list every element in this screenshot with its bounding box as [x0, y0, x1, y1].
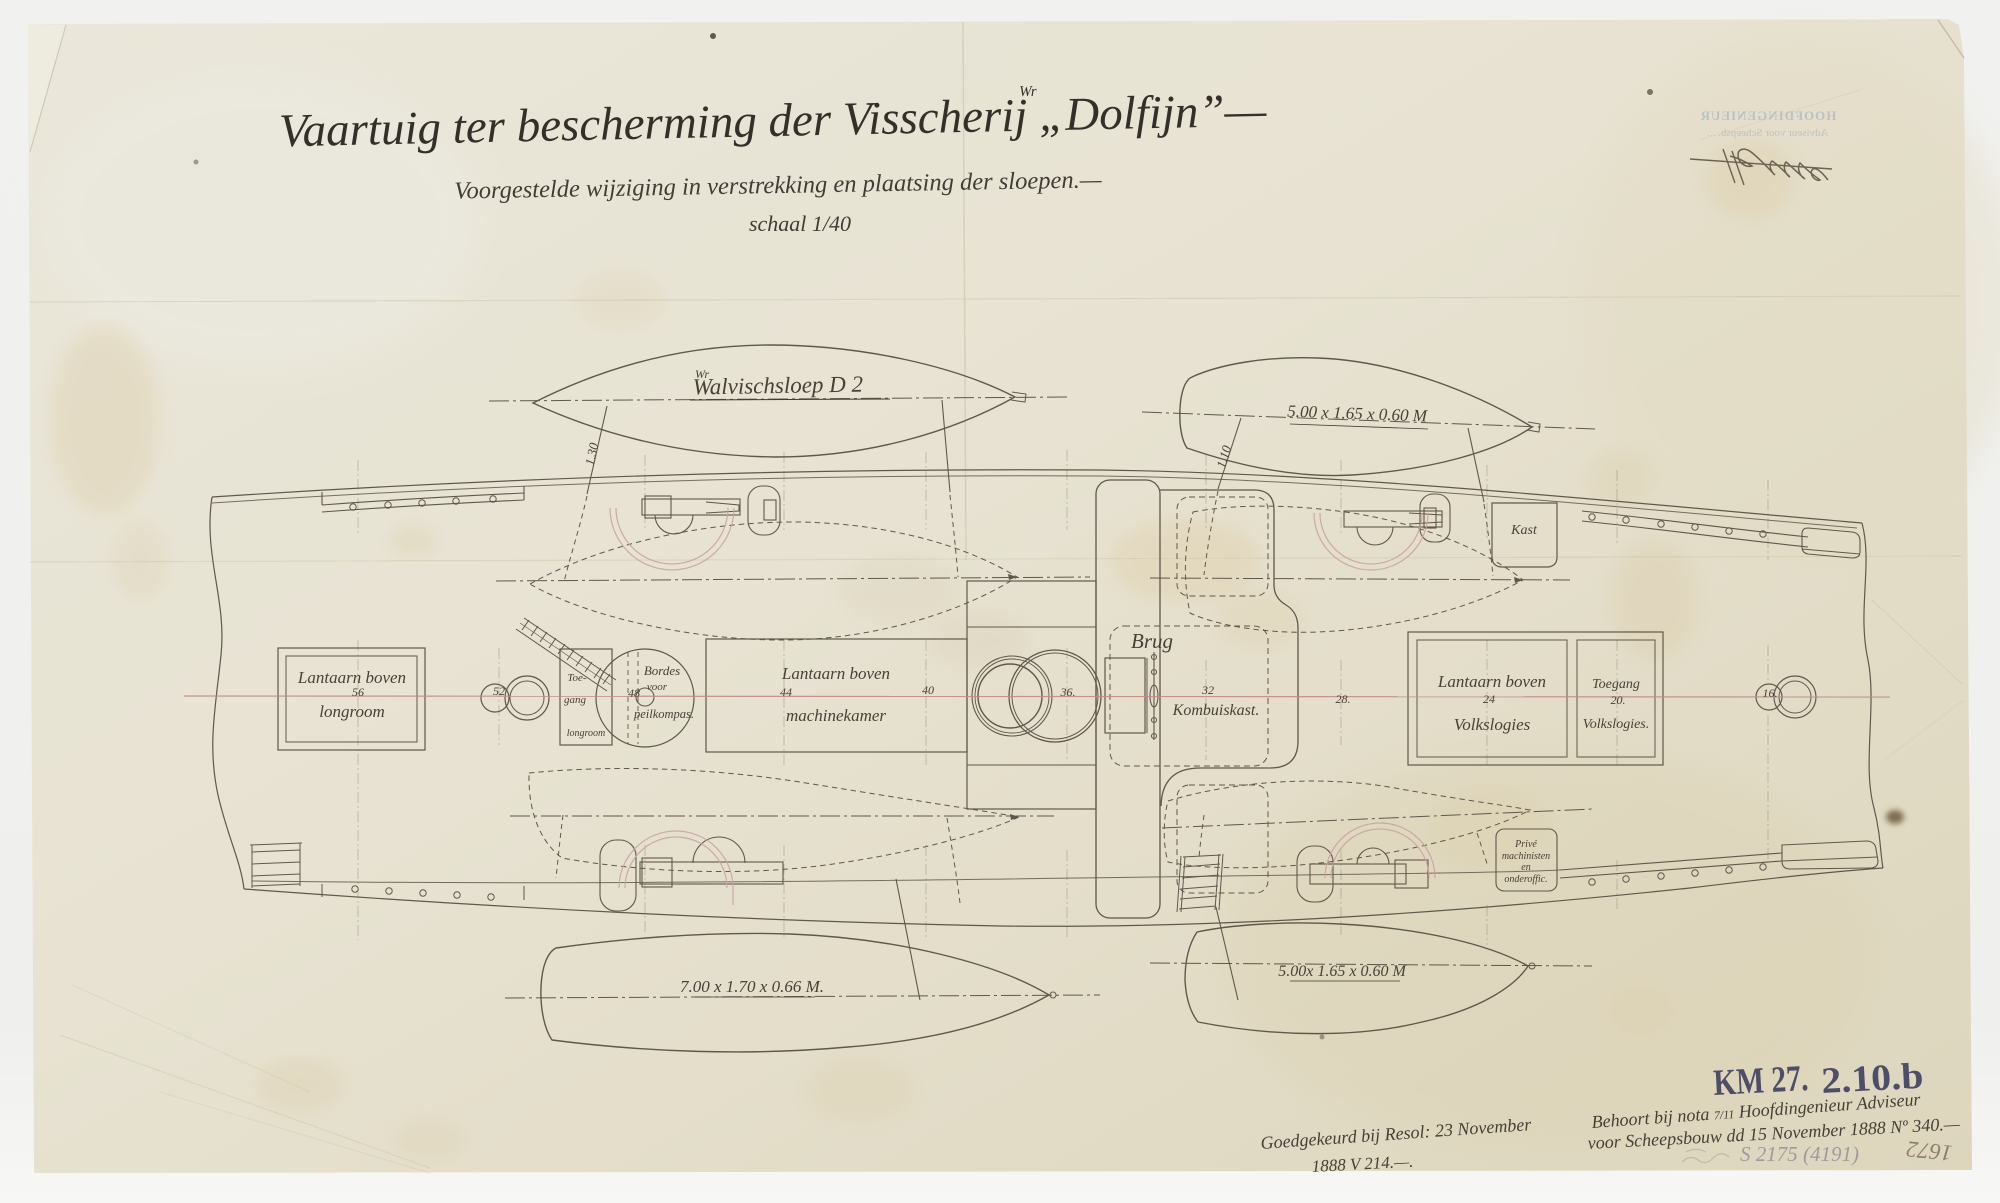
- svg-text:voor: voor: [647, 681, 668, 693]
- svg-text:Lantaarn boven: Lantaarn boven: [781, 664, 890, 683]
- svg-text:machinisten: machinisten: [1502, 851, 1550, 862]
- svg-text:1672: 1672: [1905, 1136, 1953, 1166]
- svg-text:Brug: Brug: [1131, 629, 1173, 653]
- svg-text:longroom: longroom: [567, 728, 606, 739]
- svg-text:en: en: [1521, 862, 1530, 873]
- svg-text:Lantaarn boven: Lantaarn boven: [1437, 672, 1546, 691]
- svg-text:gang: gang: [564, 694, 587, 706]
- svg-text:HOOFDINGENIEUR: HOOFDINGENIEUR: [1700, 108, 1837, 123]
- svg-text:Toe-: Toe-: [567, 672, 586, 684]
- svg-text:48: 48: [628, 686, 640, 700]
- svg-text:44: 44: [780, 685, 792, 699]
- svg-text:peilkompas.: peilkompas.: [633, 707, 694, 721]
- svg-text:Walvischsloep D 2: Walvischsloep D 2: [692, 372, 863, 400]
- svg-text:28.: 28.: [1336, 692, 1351, 706]
- svg-text:2.10.b: 2.10.b: [1820, 1056, 1924, 1102]
- svg-text:32: 32: [1201, 683, 1214, 697]
- svg-text:onderoffic.: onderoffic.: [1504, 874, 1547, 885]
- svg-text:Wr: Wr: [1019, 84, 1037, 100]
- svg-text:52: 52: [493, 684, 505, 698]
- svg-text:5.00x 1.65 x 0.60 M: 5.00x 1.65 x 0.60 M: [1278, 963, 1407, 980]
- svg-text:Adviseur voor Scheepsb. …: Adviseur voor Scheepsb. …: [1707, 127, 1828, 139]
- svg-text:Bordes: Bordes: [644, 663, 680, 678]
- svg-text:Kast: Kast: [1510, 523, 1538, 538]
- svg-text:Volkslogies: Volkslogies: [1454, 715, 1531, 734]
- svg-text:machinekamer: machinekamer: [786, 706, 886, 725]
- svg-text:16.: 16.: [1763, 686, 1778, 700]
- svg-text:schaal 1/40: schaal 1/40: [749, 211, 851, 236]
- svg-text:Wr: Wr: [695, 367, 709, 381]
- svg-text:Privé: Privé: [1514, 839, 1537, 850]
- svg-text:24: 24: [1483, 692, 1495, 706]
- svg-text:S 2175 (4191): S 2175 (4191): [1740, 1142, 1859, 1166]
- svg-text:Kombuiskast.: Kombuiskast.: [1172, 702, 1260, 719]
- svg-text:20.: 20.: [1611, 693, 1626, 707]
- svg-text:Toegang: Toegang: [1592, 677, 1640, 692]
- svg-text:56: 56: [352, 685, 364, 699]
- svg-text:Volkslogies.: Volkslogies.: [1583, 717, 1650, 732]
- svg-text:40: 40: [922, 683, 934, 697]
- svg-text:36.: 36.: [1060, 685, 1076, 699]
- svg-text:longroom: longroom: [319, 702, 385, 721]
- svg-text:7.00 x 1.70 x 0.66 M.: 7.00 x 1.70 x 0.66 M.: [680, 977, 824, 996]
- svg-text:KM 27.: KM 27.: [1712, 1058, 1809, 1104]
